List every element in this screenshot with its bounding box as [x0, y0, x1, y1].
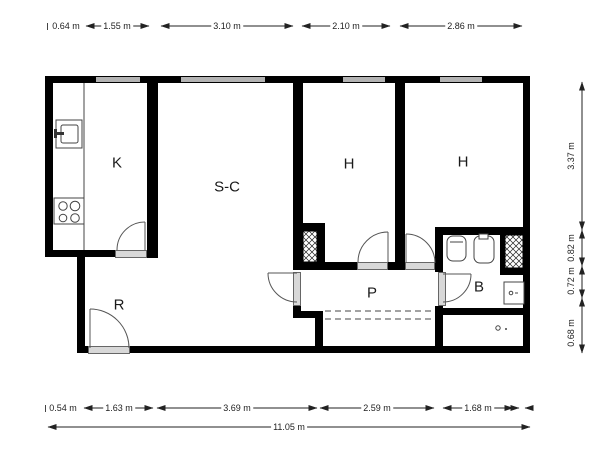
- hall-dashed-boundary: [325, 311, 435, 319]
- dim-top-0: 0.64 m: [50, 21, 82, 31]
- dim-right-0: 3.37 m: [566, 140, 576, 172]
- dim-bottom-2: 3.69 m: [221, 403, 253, 413]
- floor-plan: K S-C H H R P B 0.64 m 1.55 m 3.10 m 2.1…: [0, 0, 600, 450]
- dim-bottom-0: 0.54 m: [47, 403, 79, 413]
- outer-wall-bottom-a: [77, 346, 88, 353]
- dim-tick: [45, 405, 46, 412]
- dim-top-1: 1.55 m: [101, 21, 133, 31]
- wall-kitchen-living: [147, 76, 158, 258]
- kitchen-door-arc: [117, 222, 145, 250]
- bathroom-door-arc: [443, 274, 471, 302]
- bedroom1-window: [340, 76, 388, 83]
- room-label-entry-hall: R: [114, 297, 125, 314]
- hall-top-wall-a: [303, 262, 357, 270]
- bedroom1-door-arc: [358, 232, 388, 262]
- sink-icon: [54, 120, 82, 148]
- dim-tick: [47, 23, 48, 30]
- hall-step-wall-b: [293, 311, 323, 318]
- kitchen-window: [93, 76, 143, 83]
- stove-icon: [54, 198, 84, 224]
- hall-door-sill: [293, 272, 301, 306]
- hall-step-wall-c: [315, 318, 323, 346]
- outer-wall-bottom-b: [130, 346, 530, 353]
- living-window: [178, 76, 268, 83]
- room-label-hallway: P: [367, 285, 377, 302]
- dim-bottom-3: 2.59 m: [361, 403, 393, 413]
- bathroom-top-wall: [435, 227, 530, 235]
- dim-right-1: 0.82 m: [566, 232, 576, 264]
- toilet-icon: [447, 236, 466, 261]
- bedroom1-closet-hatch: [303, 231, 317, 262]
- bathroom-bottom-wall: [435, 308, 523, 315]
- bathroom-left-wall-upper: [435, 227, 443, 272]
- bedroom2-door-arc: [406, 234, 435, 263]
- outer-wall-right: [523, 76, 530, 353]
- dim-bottom-1: 1.63 m: [103, 403, 135, 413]
- room-label-bathroom: B: [474, 279, 484, 296]
- room-label-bedroom-1: H: [344, 156, 355, 173]
- dim-bottom-4: 1.68 m: [462, 403, 494, 413]
- dim-right-3: 0.68 m: [566, 317, 576, 349]
- bedroom2-window: [437, 76, 485, 83]
- hall-top-wall-b: [388, 262, 405, 270]
- entrance-door-sill: [88, 346, 130, 354]
- entry-left-wall: [77, 250, 85, 346]
- bidet-icon: [474, 234, 494, 263]
- kitchen-door-sill: [115, 250, 147, 258]
- wall-living-bedroom1: [293, 76, 303, 270]
- entrance-door-arc: [90, 309, 129, 348]
- dim-overall-width: 11.05 m: [271, 422, 307, 432]
- dim-top-2: 3.10 m: [211, 21, 243, 31]
- bathroom-door-sill: [438, 272, 446, 306]
- room-label-bedroom-2: H: [458, 154, 469, 171]
- water-heater-icon: [504, 282, 524, 304]
- dim-top-4: 2.86 m: [445, 21, 477, 31]
- wall-bedroom1-bedroom2: [395, 76, 405, 270]
- room-label-kitchen: K: [112, 155, 122, 172]
- room-label-living-dining: S-C: [214, 179, 240, 196]
- dim-top-3: 2.10 m: [330, 21, 362, 31]
- dim-right-2: 0.72 m: [566, 265, 576, 297]
- shaft-bottom-wall: [500, 268, 523, 275]
- closet-right-wall: [317, 223, 325, 270]
- outer-wall-left: [45, 76, 53, 257]
- bathroom-shaft-hatch: [505, 235, 523, 268]
- laundry-tap-icon: [496, 326, 507, 330]
- bedroom2-door-sill: [405, 262, 435, 270]
- bedroom1-door-sill: [357, 262, 388, 270]
- shaft-left-wall: [500, 235, 505, 268]
